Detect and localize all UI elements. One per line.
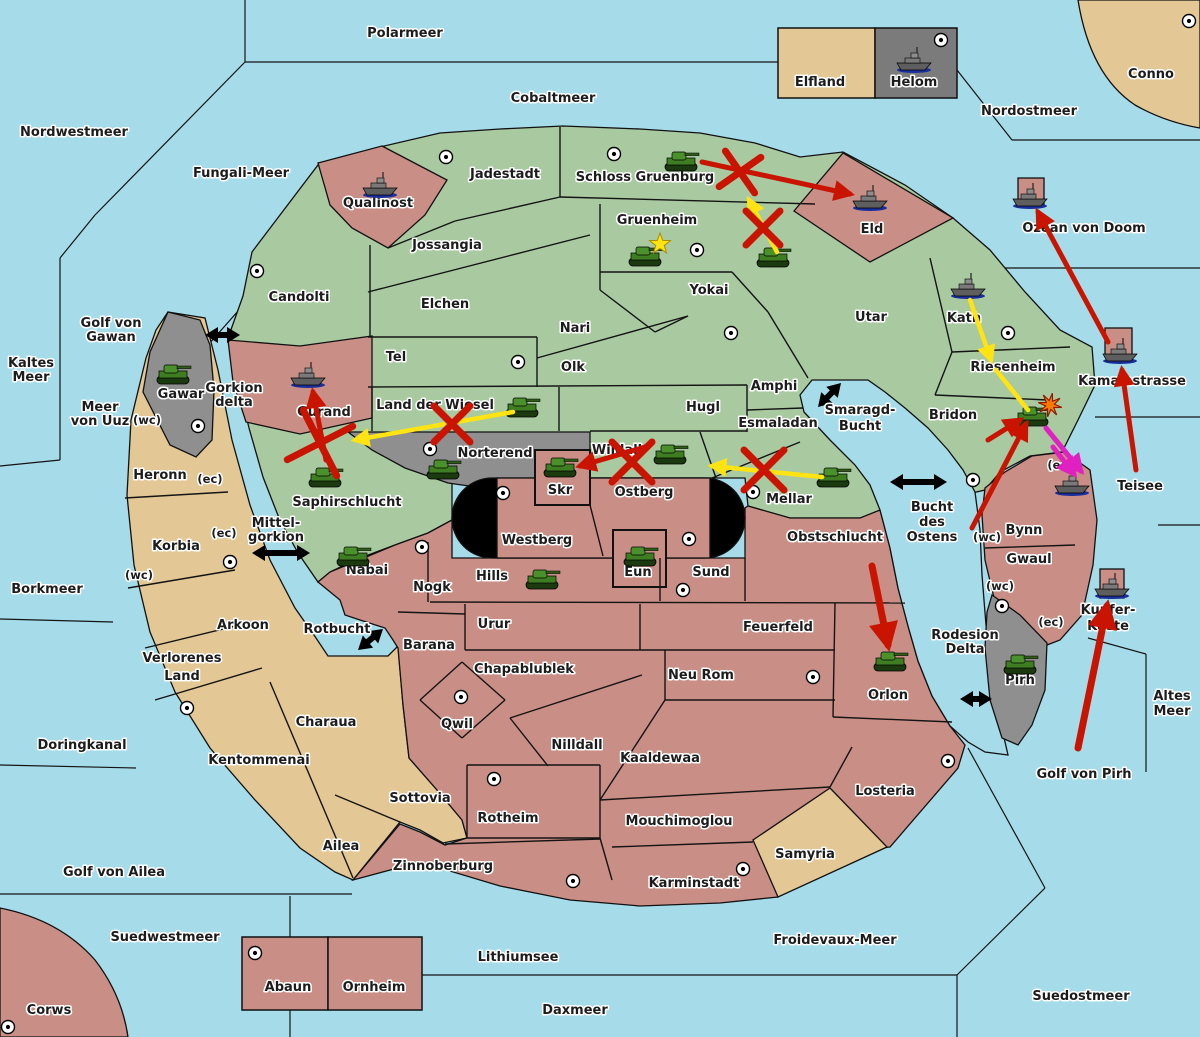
sea-label-kaltes: Kaltes: [8, 356, 54, 371]
territory-label-amphi[interactable]: Amphi: [751, 379, 798, 394]
territory-label-barana[interactable]: Barana: [403, 638, 455, 653]
territory-label-nilldall[interactable]: Nilldall: [551, 738, 602, 753]
territory-label-sottovia[interactable]: Sottovia: [389, 791, 450, 806]
territory-label-riesenheim[interactable]: Riesenheim: [970, 360, 1055, 375]
coast-type-label: (wc): [986, 579, 1014, 593]
sea-label-daxmeer: Daxmeer: [542, 1003, 608, 1018]
territory-label-karminstadt[interactable]: Karminstadt: [649, 876, 740, 891]
territory-label-gawar[interactable]: Gawar: [158, 387, 205, 402]
capital-marker: [996, 600, 1009, 613]
territory-label-candolti[interactable]: Candolti: [269, 290, 330, 305]
territory-label-chapablublek[interactable]: Chapablublek: [474, 662, 574, 677]
capital-marker: [512, 356, 525, 369]
capital-marker: [807, 671, 820, 684]
territory-label-skr[interactable]: Skr: [548, 483, 573, 498]
territory-label-obstschlucht[interactable]: Obstschlucht: [787, 530, 883, 545]
territory-label-hugl[interactable]: Hugl: [686, 400, 720, 415]
territory-label-heronn[interactable]: Heronn: [133, 468, 187, 483]
capital-marker: [725, 327, 738, 340]
territory-label-zinnoberburg[interactable]: Zinnoberburg: [393, 859, 493, 874]
territory-label-pirh[interactable]: Pirh: [1005, 673, 1035, 688]
sea-label-borkmeer: Borkmeer: [11, 582, 83, 597]
territory-label-mouchimoglou[interactable]: Mouchimoglou: [626, 814, 733, 829]
capital-marker: [455, 691, 468, 704]
territory-label-kaaldewaa[interactable]: Kaaldewaa: [620, 751, 700, 766]
territory-label-yokai[interactable]: Yokai: [688, 283, 728, 298]
capital-marker: [567, 875, 580, 888]
capital-marker: [181, 702, 194, 715]
sea-label-gorkion: gorkion: [248, 530, 304, 545]
territory-label-gruenheim[interactable]: Gruenheim: [617, 213, 697, 228]
capital-marker: [1002, 327, 1015, 340]
capital-marker: [251, 265, 264, 278]
sea-label-cobaltmeer: Cobaltmeer: [511, 91, 596, 106]
sea-label-nordostmeer: Nordostmeer: [981, 104, 1078, 119]
sea-label-polarmeer: Polarmeer: [367, 26, 443, 41]
territory-label-bynn[interactable]: Bynn: [1006, 523, 1043, 538]
coast-type-label: (ec): [1038, 615, 1063, 629]
sea-label-golf-von: Golf von: [81, 316, 142, 331]
territory-label-esmaladan[interactable]: Esmaladan: [738, 416, 818, 431]
sea-label-bucht: Bucht: [911, 500, 953, 515]
sea-label-bucht: Bucht: [839, 419, 881, 434]
territory-label-elfland[interactable]: Elfland: [795, 75, 845, 90]
capital-marker: [691, 244, 704, 257]
territory-label-rotheim[interactable]: Rotheim: [477, 811, 538, 826]
capital-marker: [608, 148, 621, 161]
sea-label-von-uuz: von Uuz: [71, 414, 130, 429]
strategy-game-map: QualinostJadestadtSchloss GruenburgGruen…: [0, 0, 1200, 1037]
ornheim-region[interactable]: [328, 937, 422, 1010]
capital-marker: [249, 947, 262, 960]
territory-label-mellar[interactable]: Mellar: [766, 492, 812, 507]
territory-label-gwaul[interactable]: Gwaul: [1006, 552, 1051, 567]
sea-label-delta: Delta: [945, 642, 984, 657]
territory-label-olk[interactable]: Olk: [561, 360, 586, 375]
territory-label-helom[interactable]: Helom: [891, 75, 938, 90]
territory-label-orlon[interactable]: Orlon: [868, 688, 908, 703]
capital-marker: [737, 863, 750, 876]
territory-label-hills[interactable]: Hills: [476, 569, 508, 584]
sea-label-suedwestmeer: Suedwestmeer: [110, 930, 220, 945]
territory-label-saphirschlucht[interactable]: Saphirschlucht: [292, 495, 401, 510]
capital-marker: [416, 541, 429, 554]
sea-label-lithiumsee: Lithiumsee: [478, 950, 559, 965]
territory-label-charaua[interactable]: Charaua: [296, 715, 357, 730]
territory-label-neu-rom[interactable]: Neu Rom: [668, 668, 734, 683]
territory-label-tel[interactable]: Tel: [386, 350, 406, 365]
territory-label-jossangia[interactable]: Jossangia: [411, 238, 482, 253]
territory-label-ornheim[interactable]: Ornheim: [343, 980, 406, 995]
sea-label-gorkion: Gorkion: [205, 381, 262, 396]
territory-label-urur[interactable]: Urur: [478, 617, 511, 632]
territory-label-kentommenai[interactable]: Kentommenai: [208, 753, 309, 768]
territory-label-eun[interactable]: Eun: [624, 565, 651, 580]
territory-label-elchen[interactable]: Elchen: [421, 297, 469, 312]
territory-label-utar[interactable]: Utar: [855, 310, 888, 325]
sea-label-golf-von-ailea: Golf von Ailea: [63, 865, 165, 880]
capital-marker: [677, 584, 690, 597]
territory-label-corws[interactable]: Corws: [27, 1003, 72, 1018]
coast-type-label: (wc): [133, 413, 161, 427]
capital-marker: [2, 1021, 15, 1034]
territory-label-nari[interactable]: Nari: [560, 321, 591, 336]
coast-type-label: (ec): [197, 472, 222, 486]
sea-label-meer: Meer: [1154, 704, 1192, 719]
sea-label-suedostmeer: Suedostmeer: [1032, 989, 1130, 1004]
capital-marker: [1183, 15, 1196, 28]
sea-label-fungali-meer: Fungali-Meer: [193, 166, 290, 181]
territory-label-losteria[interactable]: Losteria: [855, 784, 915, 799]
capital-marker: [488, 773, 501, 786]
territory-label-feuerfeld[interactable]: Feuerfeld: [743, 620, 813, 635]
game-map-stage: QualinostJadestadtSchloss GruenburgGruen…: [0, 0, 1200, 1037]
sea-label-smaragd: Smaragd-: [825, 403, 896, 418]
territory-border: [430, 602, 905, 603]
territory-label-qualinost[interactable]: Qualinost: [343, 196, 413, 211]
capital-marker: [967, 474, 980, 487]
territory-label-eld[interactable]: Eld: [861, 222, 884, 237]
sea-label-teisee: Teisee: [1117, 479, 1163, 494]
coast-type-label: (ec): [211, 526, 236, 540]
sea-label-meer: Meer: [82, 400, 120, 415]
territory-label-conno[interactable]: Conno: [1128, 67, 1174, 82]
sea-label-golf-von-pirh: Golf von Pirh: [1036, 767, 1131, 782]
territory-label-land[interactable]: Land: [164, 669, 200, 684]
sea-label-altes: Altes: [1153, 689, 1191, 704]
sea-label-gawan: Gawan: [86, 330, 135, 345]
territory-label-arkoon[interactable]: Arkoon: [217, 618, 269, 633]
sea-label-mittel: Mittel-: [252, 516, 301, 531]
capital-marker: [192, 420, 205, 433]
territory-label-sund[interactable]: Sund: [692, 565, 729, 580]
capital-marker: [942, 755, 955, 768]
capital-marker: [224, 556, 237, 569]
territory-label-abaun[interactable]: Abaun: [265, 980, 312, 995]
territory-label-verlorenes[interactable]: Verlorenes: [142, 651, 221, 666]
territory-label-ailea[interactable]: Ailea: [323, 839, 360, 854]
territory-label-norterend[interactable]: Norterend: [457, 446, 532, 461]
sea-label-nordwestmeer: Nordwestmeer: [20, 125, 128, 140]
sea-label-ostens: Ostens: [907, 530, 958, 545]
territory-label-westberg[interactable]: Westberg: [502, 533, 572, 548]
capital-marker: [440, 151, 453, 164]
coast-type-label: (wc): [125, 568, 153, 582]
sea-label-rodesion: Rodesion: [931, 628, 998, 643]
sea-label-doringkanal: Doringkanal: [37, 738, 126, 753]
capital-marker: [683, 533, 696, 546]
territory-label-ostberg[interactable]: Ostberg: [615, 485, 674, 500]
territory-label-bridon[interactable]: Bridon: [929, 408, 977, 423]
sea-label-froidevaux-meer: Froidevaux-Meer: [773, 933, 897, 948]
sea-label-meer: Meer: [13, 370, 51, 385]
capital-marker: [497, 487, 510, 500]
territory-label-korbia[interactable]: Korbia: [152, 539, 200, 554]
sea-label-des: des: [919, 515, 945, 530]
territory-label-samyria[interactable]: Samyria: [775, 847, 835, 862]
territory-label-nogk[interactable]: Nogk: [413, 580, 451, 595]
coast-type-label: (wc): [973, 530, 1001, 544]
capital-marker: [935, 34, 948, 47]
territory-label-schloss-gruenburg[interactable]: Schloss Gruenburg: [576, 170, 714, 185]
sea-label-rotbucht: Rotbucht: [304, 622, 371, 637]
territory-label-jadestadt[interactable]: Jadestadt: [469, 167, 540, 182]
territory-label-qwil[interactable]: Qwil: [441, 717, 473, 732]
sea-label-delta: delta: [215, 395, 253, 410]
